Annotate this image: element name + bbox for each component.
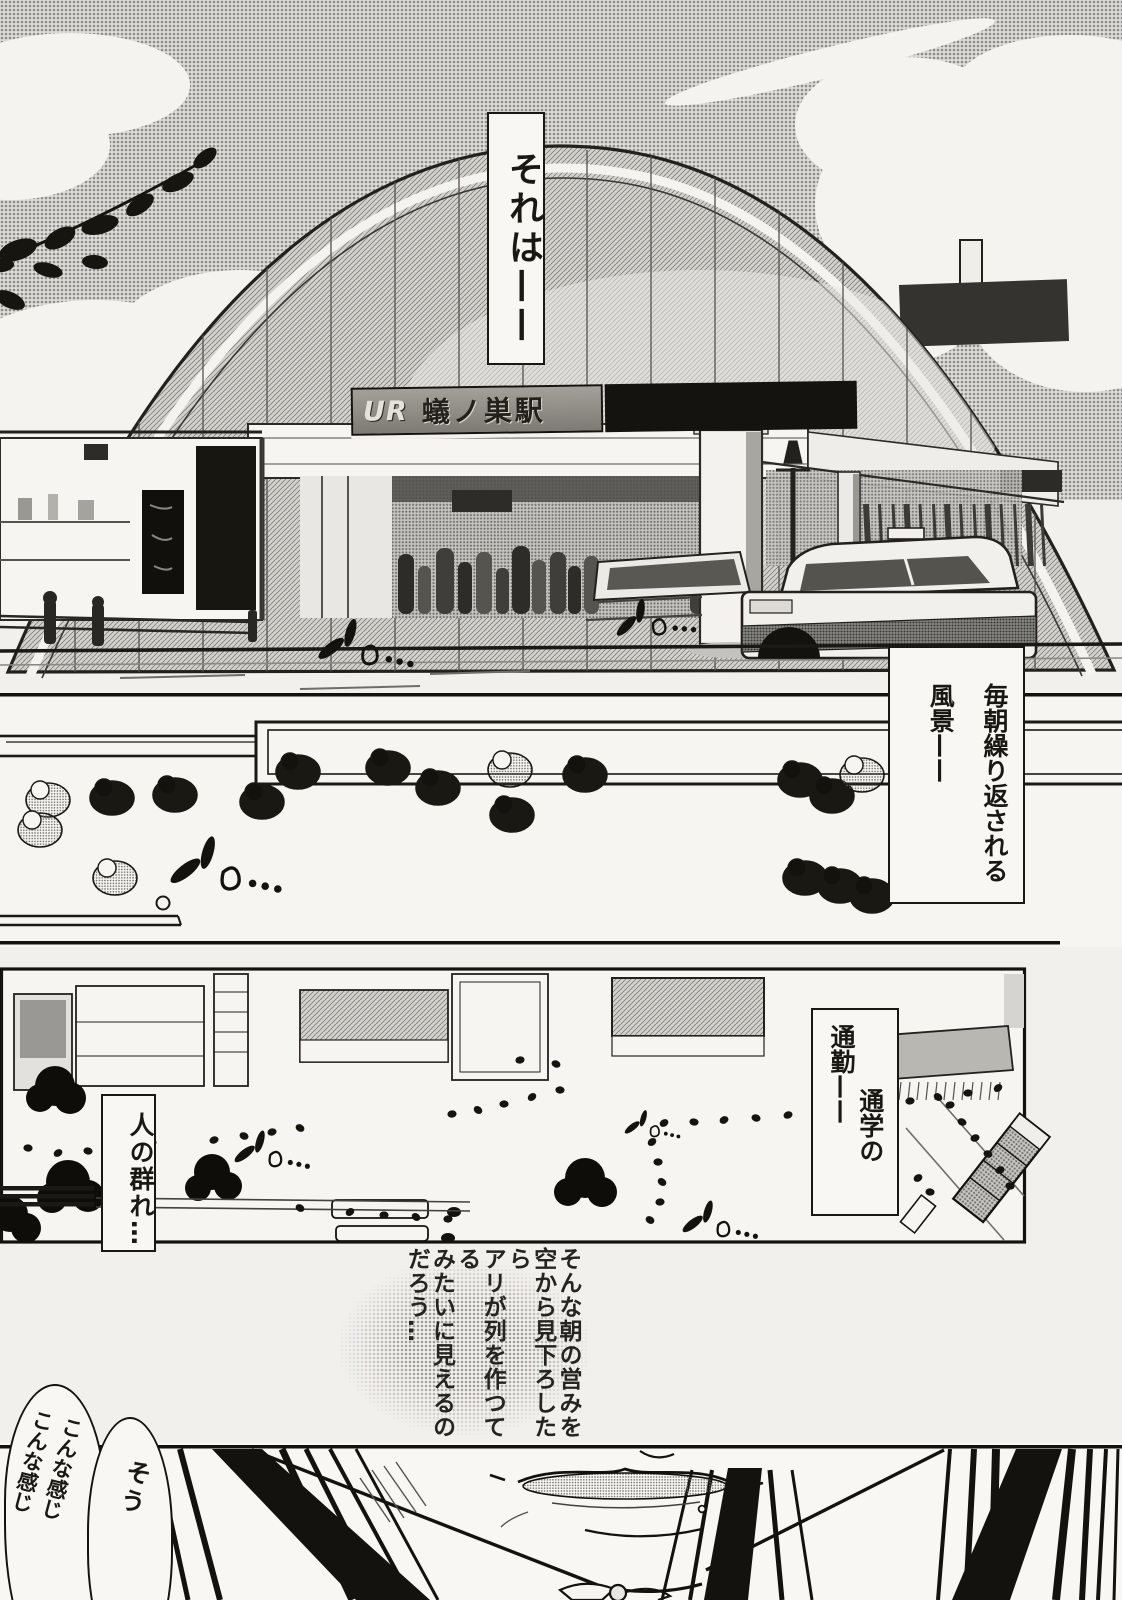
- caption-commute: 通勤—— 通学の: [811, 1008, 899, 1216]
- manga-page: それは—— UR 蟻ノ巣駅 毎朝繰り返される 風景—— 通勤—— 通学の 人の群…: [0, 0, 1122, 1600]
- speech-bubble-sou-text: そう: [113, 1457, 153, 1520]
- caption-commute-line1: 通勤——: [826, 1024, 855, 1214]
- caption-crowd-of-people: 人の群れ…: [101, 1094, 156, 1252]
- station-sign: UR 蟻ノ巣駅: [351, 384, 604, 436]
- caption-commute-line2: 通学の: [855, 1088, 884, 1214]
- panel-border-bottom: [0, 941, 1060, 945]
- panel-aerial-plaza: [0, 947, 1122, 1247]
- station-sign-operator-logo: UR: [363, 395, 408, 427]
- beauty-mark: [699, 1506, 706, 1513]
- left-shops: [0, 432, 262, 620]
- caption-morning-scene: 毎朝繰り返される 風景——: [888, 646, 1025, 904]
- speech-bubble-konna-text: こんな感じ こんな感じ: [4, 1406, 88, 1523]
- caption-intro: それは——: [487, 112, 545, 365]
- station-sign-name: 蟻ノ巣駅: [421, 389, 546, 431]
- narration-monologue: そんな朝の営みを 空から見下ろしたら アリが列を作つてる みたいに見えるの だろ…: [448, 1247, 580, 1443]
- panel-station-exterior: [0, 0, 1122, 697]
